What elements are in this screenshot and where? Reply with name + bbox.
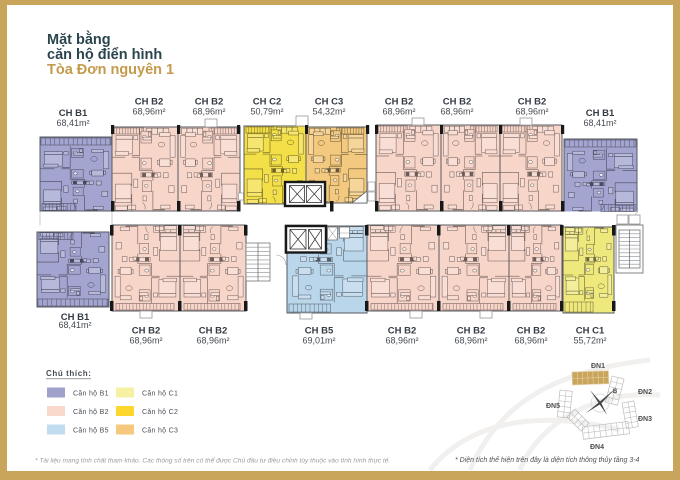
svg-text:68,96m²: 68,96m² (440, 107, 473, 117)
svg-text:ĐN4: ĐN4 (590, 444, 604, 451)
svg-text:54,32m²: 54,32m² (312, 107, 345, 117)
svg-text:Tòa Đơn nguyên 1: Tòa Đơn nguyên 1 (47, 62, 174, 78)
svg-text:Căn hộ C1: Căn hộ C1 (142, 391, 178, 398)
svg-text:68,96m²: 68,96m² (514, 336, 547, 346)
svg-text:ĐN1: ĐN1 (591, 363, 605, 370)
svg-text:69,01m²: 69,01m² (302, 336, 335, 346)
svg-text:ĐN3: ĐN3 (638, 416, 652, 423)
svg-text:50,79m²: 50,79m² (250, 107, 283, 117)
svg-text:68,41m²: 68,41m² (56, 118, 89, 128)
svg-text:68,96m²: 68,96m² (515, 107, 548, 117)
svg-text:Căn hộ B1: Căn hộ B1 (73, 391, 109, 398)
svg-text:68,96m²: 68,96m² (132, 107, 165, 117)
svg-text:Căn hộ B5: Căn hộ B5 (73, 428, 109, 435)
svg-text:68,96m²: 68,96m² (196, 336, 229, 346)
svg-text:Căn hộ B2: Căn hộ B2 (73, 409, 109, 416)
svg-text:55,72m²: 55,72m² (573, 336, 606, 346)
svg-text:* Tài liệu mang tính chất tham: * Tài liệu mang tính chất tham khảo. Các… (35, 456, 390, 465)
svg-text:68,41m²: 68,41m² (583, 118, 616, 128)
svg-text:Căn hộ C2: Căn hộ C2 (142, 409, 178, 416)
svg-text:Căn hộ C3: Căn hộ C3 (142, 428, 178, 435)
svg-text:68,96m²: 68,96m² (192, 107, 225, 117)
svg-text:ĐN2: ĐN2 (638, 389, 652, 396)
svg-text:68,96m²: 68,96m² (385, 336, 418, 346)
svg-text:Chú thích:: Chú thích: (46, 369, 92, 378)
svg-text:68,96m²: 68,96m² (454, 336, 487, 346)
svg-text:68,96m²: 68,96m² (382, 107, 415, 117)
svg-text:căn hộ điển hình: căn hộ điển hình (47, 47, 162, 63)
svg-text:* Diện tích thể hiện trên đây: * Diện tích thể hiện trên đây là diện tí… (455, 455, 640, 464)
svg-text:Mặt bằng: Mặt bằng (47, 30, 111, 48)
svg-text:ĐN5: ĐN5 (546, 403, 560, 410)
svg-text:B: B (613, 389, 618, 395)
svg-text:68,96m²: 68,96m² (129, 336, 162, 346)
svg-text:68,41m²: 68,41m² (58, 320, 91, 330)
